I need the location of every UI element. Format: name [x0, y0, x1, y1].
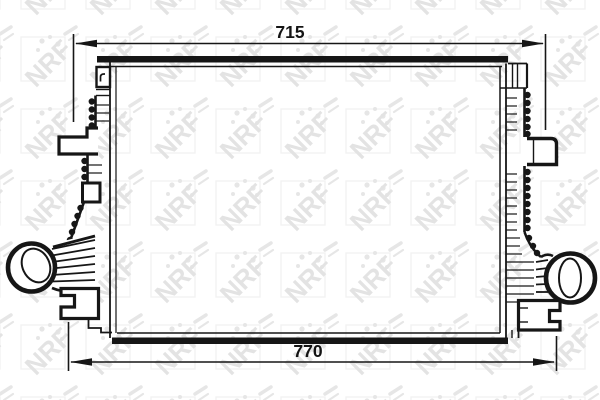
left-tank-latch	[97, 67, 111, 87]
pipe-opening-left	[8, 244, 55, 292]
drawing-canvas: NRF 715	[0, 0, 600, 400]
left-tank-boss	[83, 183, 101, 202]
core-top-edge	[97, 56, 508, 63]
dimension-top-label: 715	[275, 22, 304, 42]
dimension-bottom-label: 770	[293, 341, 322, 361]
pipe-opening-right	[546, 254, 595, 303]
intercooler-technical-drawing: NRF 715	[0, 0, 600, 400]
right-upper-mounting-bracket	[527, 139, 557, 165]
